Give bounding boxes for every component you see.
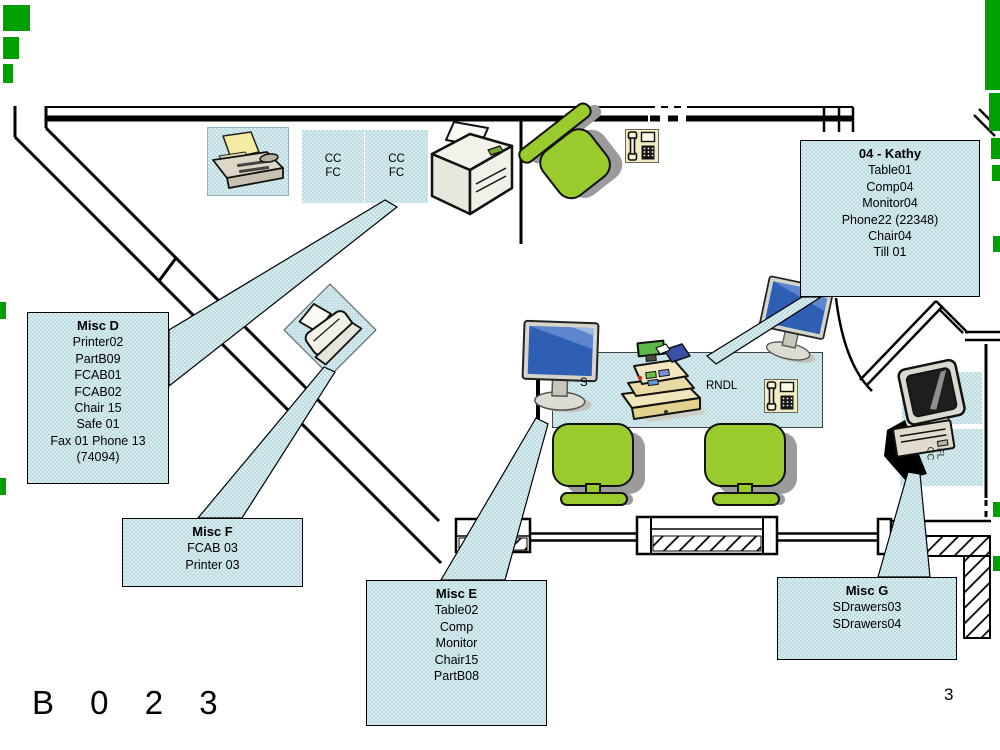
leader-misc-d	[169, 200, 397, 386]
border-mark	[993, 502, 1000, 517]
callout-title: Misc G	[778, 583, 956, 599]
callout-kathy: 04 - Kathy Table01 Comp04 Monitor04 Phon…	[800, 140, 980, 297]
callout-misc-f: Misc F FCAB 03 Printer 03	[122, 518, 303, 587]
floor-plan: CC FC CC FC	[0, 0, 1000, 750]
leader-misc-f	[198, 367, 335, 518]
border-mark	[3, 64, 13, 83]
border-mark	[3, 5, 30, 31]
border-mark	[0, 478, 6, 495]
sheet-number: 3	[944, 685, 953, 705]
callout-misc-d: Misc D Printer02 PartB09 FCAB01 FCAB02 C…	[27, 312, 169, 484]
callout-title: Misc D	[28, 318, 168, 334]
border-mark	[985, 0, 1000, 90]
border-mark	[993, 236, 1000, 252]
border-mark	[991, 138, 1000, 159]
room-label: B 0 2 3	[32, 684, 219, 722]
callout-title: 04 - Kathy	[801, 146, 979, 162]
border-mark	[992, 165, 1000, 181]
leader-misc-e	[441, 418, 548, 580]
callout-misc-e: Misc E Table02 Comp Monitor Chair15 Part…	[366, 580, 547, 726]
border-mark	[989, 93, 1000, 131]
callout-title: Misc F	[123, 524, 302, 540]
border-mark	[0, 302, 6, 319]
border-mark	[3, 37, 19, 59]
leader-misc-g	[878, 472, 930, 577]
leader-kathy	[707, 297, 821, 364]
callout-misc-g: Misc G SDrawers03 SDrawers04	[777, 577, 957, 660]
callout-title: Misc E	[367, 586, 546, 602]
border-mark	[993, 556, 1000, 571]
